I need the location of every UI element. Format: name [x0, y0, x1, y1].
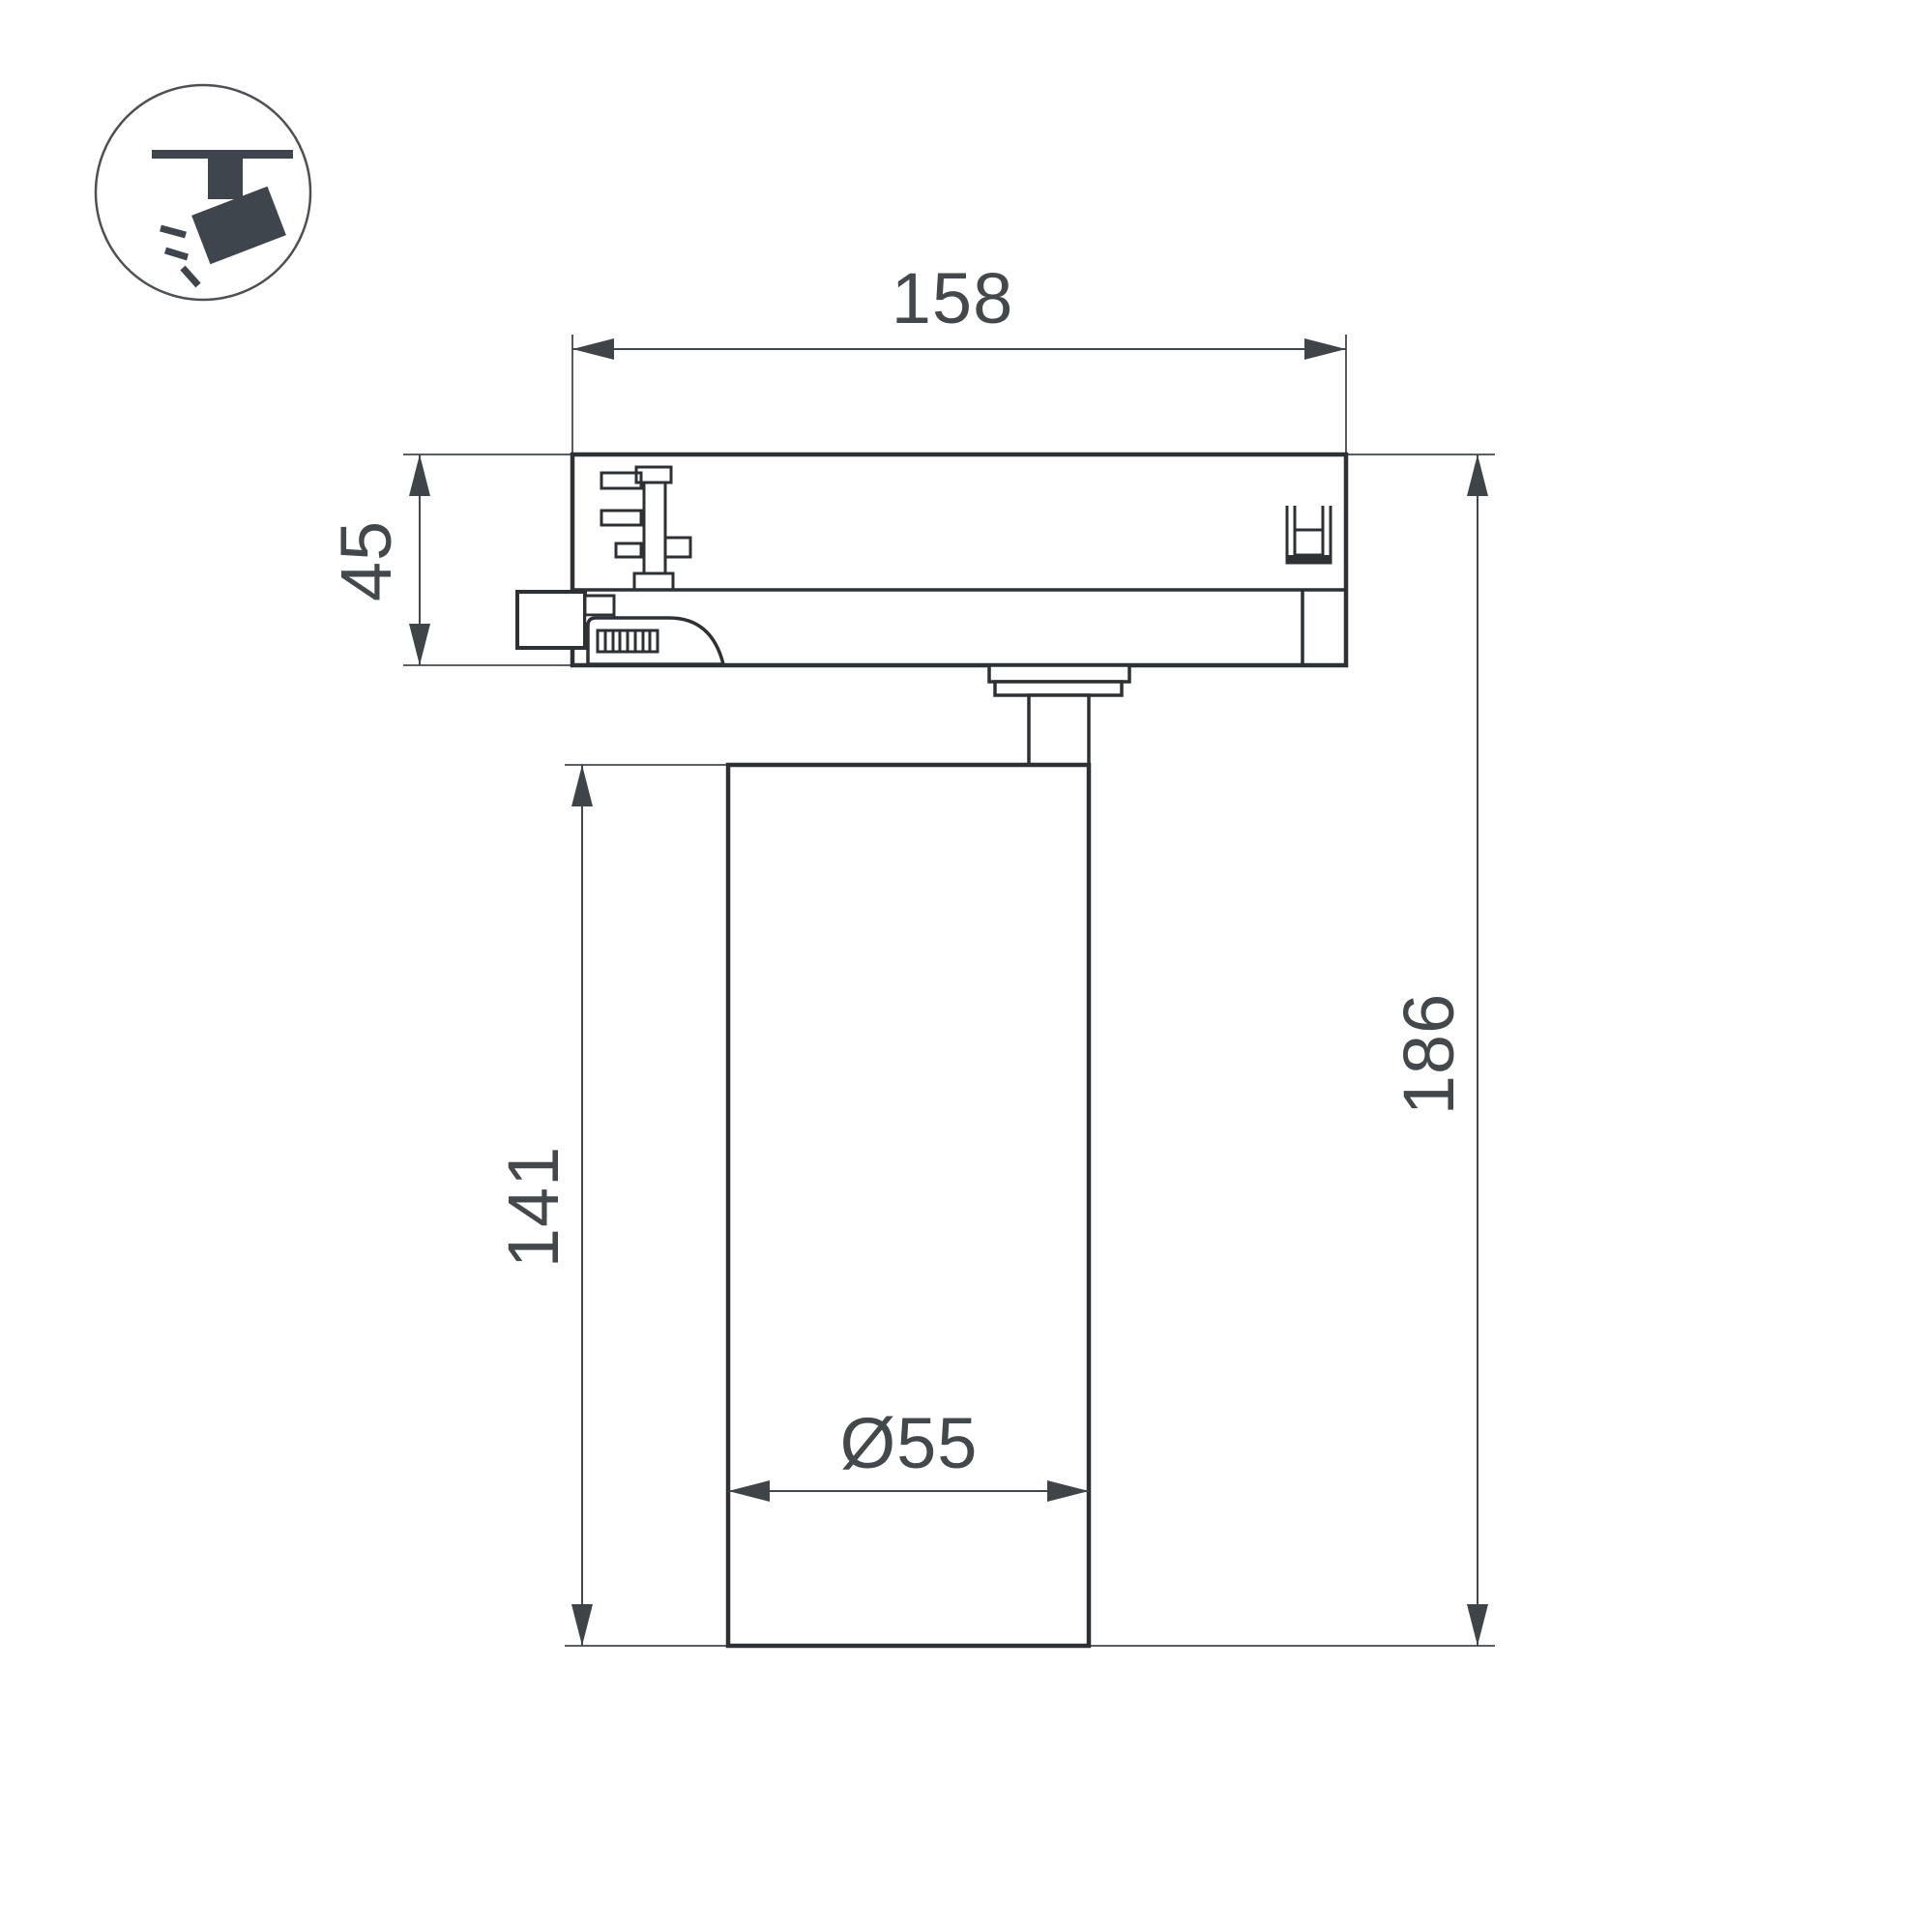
- dim-label-adapter-width: 158: [892, 258, 1013, 338]
- icon-mount-stem: [208, 157, 243, 199]
- stem-neck: [1029, 695, 1089, 765]
- lever-grip: [598, 630, 658, 652]
- lock-lever-box: [517, 592, 585, 648]
- arrowhead-down: [571, 1604, 593, 1646]
- technical-drawing: 158 45 141 186 Ø55: [0, 0, 1932, 1932]
- pivot-stem: [989, 665, 1129, 765]
- lock-lever: [517, 592, 723, 664]
- lever-body: [588, 618, 723, 664]
- dim-label-body-height: 141: [493, 1146, 573, 1268]
- lamp-cylinder: [728, 765, 1089, 1646]
- arrowhead-up: [571, 765, 593, 806]
- housing-clip: [1287, 506, 1331, 563]
- arrowhead-left: [572, 338, 614, 360]
- dim-label-total-height: 186: [1389, 993, 1469, 1115]
- dim-label-body-diameter: Ø55: [840, 1403, 979, 1483]
- dimension-adapter-height: 45: [326, 454, 430, 665]
- stem-flange-upper: [989, 665, 1129, 682]
- track-contact-assembly: [601, 467, 690, 590]
- track-spotlight-icon: [96, 85, 310, 300]
- arrowhead-up: [409, 454, 430, 496]
- arrowhead-down: [1467, 1604, 1488, 1646]
- lock-latch: [585, 596, 614, 615]
- icon-circle: [96, 85, 310, 300]
- stem-flange-lower: [995, 682, 1122, 695]
- dim-label-adapter-height: 45: [326, 520, 406, 601]
- dimension-body-height: 141: [493, 765, 593, 1646]
- drawing-canvas: 158 45 141 186 Ø55: [0, 0, 1932, 1932]
- arrowhead-right: [1304, 338, 1346, 360]
- dimension-adapter-width: 158: [572, 258, 1346, 360]
- arrowhead-down: [409, 624, 430, 665]
- arrowhead-up: [1467, 454, 1488, 496]
- dimension-total-height: 186: [1389, 454, 1488, 1646]
